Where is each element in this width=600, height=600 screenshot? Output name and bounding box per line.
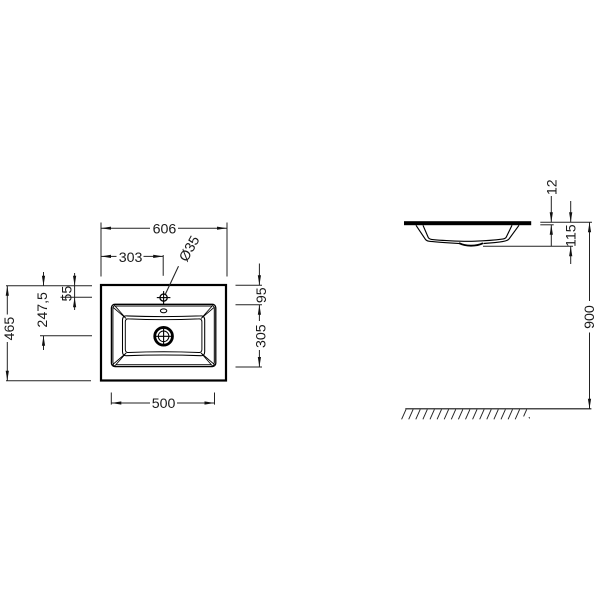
svg-text:465: 465 — [2, 317, 18, 341]
svg-text:Ø35: Ø35 — [176, 233, 203, 264]
svg-text:95: 95 — [254, 287, 270, 303]
svg-text:55: 55 — [60, 286, 76, 302]
svg-text:12: 12 — [545, 179, 561, 195]
svg-text:500: 500 — [152, 396, 176, 412]
svg-text:900: 900 — [582, 305, 598, 329]
svg-text:115: 115 — [564, 224, 580, 247]
svg-text:305: 305 — [253, 324, 269, 348]
svg-text:247,5: 247,5 — [35, 292, 51, 328]
svg-text:606: 606 — [153, 222, 177, 238]
svg-text:303: 303 — [119, 250, 143, 266]
